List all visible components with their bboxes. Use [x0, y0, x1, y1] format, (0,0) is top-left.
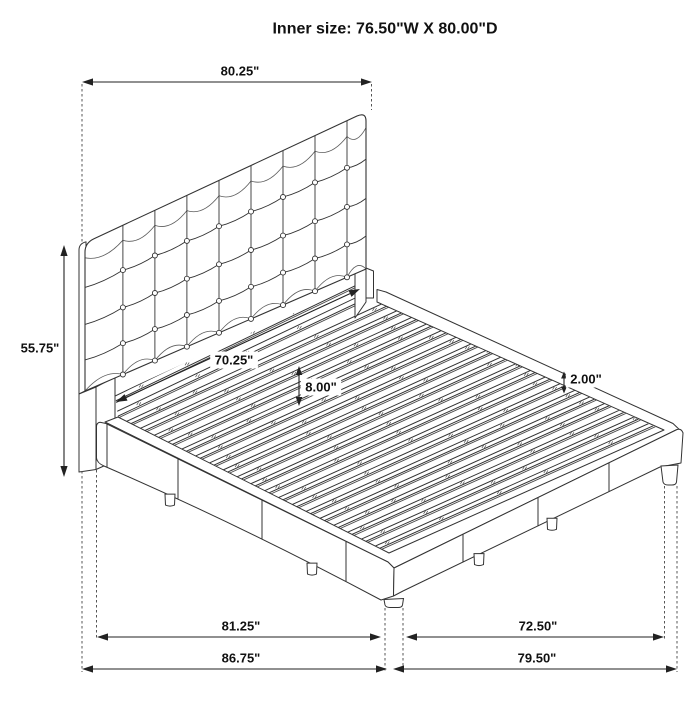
svg-text:80.25": 80.25"	[221, 64, 260, 79]
svg-text:81.25": 81.25"	[222, 619, 261, 634]
svg-text:2.00": 2.00"	[570, 372, 601, 387]
svg-text:72.50": 72.50"	[519, 619, 558, 634]
svg-text:86.75": 86.75"	[222, 651, 261, 666]
svg-text:55.75": 55.75"	[21, 341, 60, 356]
svg-text:Inner size: 76.50"W X 80.00"D: Inner size: 76.50"W X 80.00"D	[272, 21, 497, 38]
svg-text:8.00": 8.00"	[305, 380, 336, 395]
svg-text:70.25": 70.25"	[215, 353, 254, 368]
svg-text:79.50": 79.50"	[518, 651, 557, 666]
